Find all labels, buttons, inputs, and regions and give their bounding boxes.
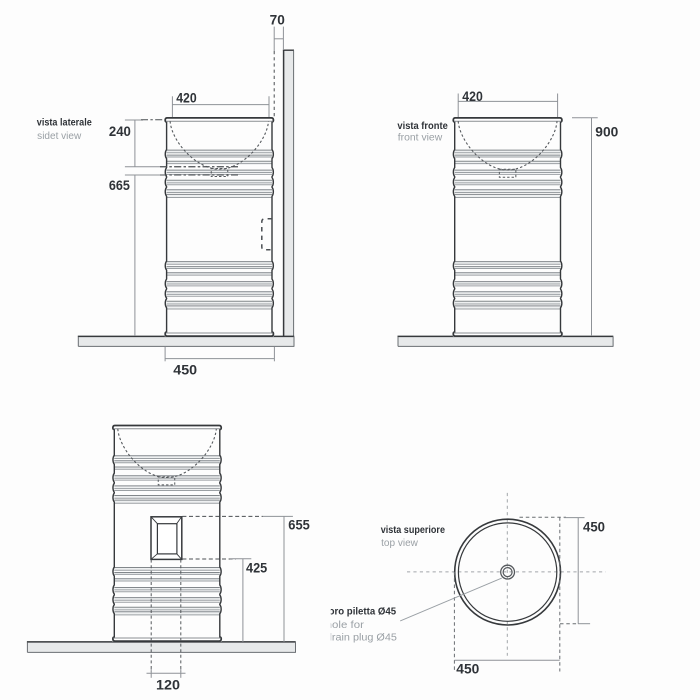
svg-text:450: 450 — [173, 362, 197, 378]
svg-text:655: 655 — [288, 517, 310, 533]
svg-text:120: 120 — [156, 677, 180, 693]
svg-text:450: 450 — [583, 518, 605, 534]
svg-text:drain plug Ø45: drain plug Ø45 — [326, 632, 397, 643]
svg-text:665: 665 — [109, 177, 130, 193]
svg-text:70: 70 — [270, 11, 285, 27]
svg-text:425: 425 — [246, 559, 267, 575]
svg-text:hole for: hole for — [326, 620, 365, 631]
svg-text:foro piletta Ø45: foro piletta Ø45 — [325, 606, 396, 617]
svg-text:vista laterale: vista laterale — [37, 118, 92, 129]
svg-text:240: 240 — [109, 123, 131, 139]
svg-text:vista fronte: vista fronte — [397, 121, 448, 132]
svg-text:900: 900 — [595, 124, 618, 140]
svg-text:420: 420 — [462, 88, 483, 104]
svg-text:vista superiore: vista superiore — [381, 525, 446, 536]
svg-text:top view: top view — [381, 538, 419, 549]
svg-text:420: 420 — [176, 90, 197, 106]
svg-text:front view: front view — [398, 132, 443, 143]
svg-text:sidet view: sidet view — [37, 131, 82, 142]
svg-text:450: 450 — [456, 661, 479, 677]
